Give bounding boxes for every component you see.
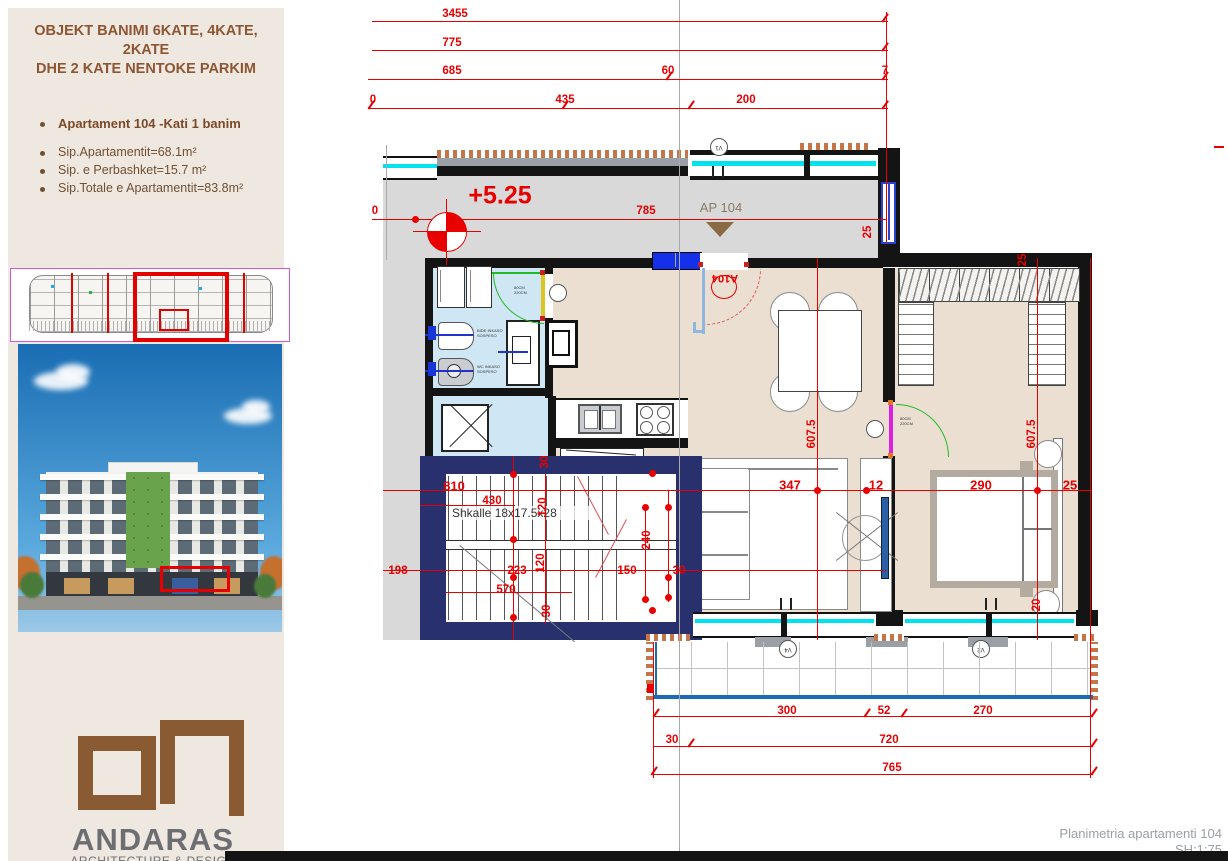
nightstand xyxy=(1034,440,1062,468)
dimension-label: 290 xyxy=(970,478,992,493)
dimension-label: 775 xyxy=(442,37,461,49)
apartment-info: Apartament 104 -Kati 1 banim Sip.Apartam… xyxy=(32,116,278,199)
dimension-label: 30 xyxy=(673,565,686,577)
dimension-label: 30 xyxy=(539,456,551,469)
window-mullion-mark xyxy=(712,166,724,178)
total-area: Sip.Totale e Apartamentit=83.8m² xyxy=(32,181,278,195)
apartment-entry-arrow xyxy=(706,222,734,237)
tree xyxy=(254,574,276,598)
key-plan-highlight-apartment-104 xyxy=(133,272,229,342)
logo-mark-n-left xyxy=(160,720,175,804)
sheet-bottom-bar xyxy=(225,851,1228,861)
dimension-label: 198 xyxy=(388,565,407,577)
key-plan-gridline xyxy=(243,273,245,333)
dimension-label: 785 xyxy=(636,205,655,217)
bedroom-door-size: 80CM220CM xyxy=(900,416,913,426)
dimension-label: 7 xyxy=(882,65,888,77)
bidet xyxy=(438,322,474,350)
dining-table xyxy=(778,310,862,392)
logo-mark-square xyxy=(78,736,156,810)
dimension-label: 0 xyxy=(372,205,378,217)
bedroom-door-leaf xyxy=(889,404,893,454)
balcony-edge xyxy=(653,695,1093,699)
sidebar-panel: OBJEKT BANIMI 6KATE, 4KATE, 2KATE DHE 2 … xyxy=(8,8,284,861)
dimension-label: 200 xyxy=(736,94,755,106)
balcony-tiles xyxy=(655,642,1091,696)
green-wall xyxy=(126,472,170,568)
dimension-label: 120 xyxy=(535,553,547,572)
dimension-label: 240 xyxy=(641,530,653,549)
dimension-label: 25 xyxy=(1017,254,1029,267)
key-plan-detail xyxy=(51,285,54,288)
grid-line-left xyxy=(386,145,387,260)
balcony-hatch-right xyxy=(1090,642,1098,700)
bath-door-size: 80CM220CM xyxy=(514,285,527,295)
grid-line-vertical xyxy=(679,0,680,852)
tree xyxy=(20,572,44,598)
entry-door-opening xyxy=(700,253,748,270)
tap xyxy=(428,326,436,340)
window-top-left xyxy=(383,156,437,180)
level-marker-symbol xyxy=(427,212,467,252)
dimension-label: 435 xyxy=(555,94,574,106)
dimension-label: 570 xyxy=(496,584,515,596)
cloud xyxy=(56,364,90,380)
apartment-heading: Apartament 104 -Kati 1 banim xyxy=(32,116,278,131)
drawing-sheet: OBJEKT BANIMI 6KATE, 4KATE, 2KATE DHE 2 … xyxy=(0,0,1228,861)
dimension-label: 52 xyxy=(878,705,891,717)
bed-post xyxy=(1020,461,1033,473)
dimension-label: 30 xyxy=(666,734,679,746)
dimension-label: 300 xyxy=(777,705,796,717)
level-label: +5.25 xyxy=(468,182,531,211)
toilet-label: WC INKASOSOSPESO xyxy=(477,364,500,374)
logo-mark-n-right xyxy=(229,720,244,816)
key-plan-gridline xyxy=(71,273,73,333)
entry-door-tag: A104 xyxy=(704,272,746,284)
wardrobe-shelves-left xyxy=(898,302,934,386)
dimension-label: 607.5 xyxy=(1026,420,1038,449)
dimension-label: 25 xyxy=(862,226,874,239)
street xyxy=(18,596,282,610)
electrical-panel xyxy=(652,252,702,270)
dimension-label: 20 xyxy=(1031,599,1043,612)
dimension-label: 0 xyxy=(370,94,376,106)
dimension-label: 60 xyxy=(662,65,675,77)
cloud xyxy=(242,400,270,414)
project-title-line2: DHE 2 KATE NENTOKE PARKIM xyxy=(36,61,256,77)
dimension-label: 25 xyxy=(1063,478,1077,493)
bidet-label: BIDE INKASOSOSPESO xyxy=(477,328,503,338)
apartment-tag: AP 104 xyxy=(693,200,749,215)
dimension-label: 430 xyxy=(482,495,501,507)
dimension-label: 347 xyxy=(779,478,801,493)
key-plan-highlight-inner xyxy=(159,309,189,331)
bath-door-tag xyxy=(549,284,567,302)
boiler-unit xyxy=(437,266,465,308)
tv-screen xyxy=(881,497,889,579)
drawing-title: Planimetria apartamenti 104 xyxy=(982,826,1222,841)
shared-area: Sip. e Perbashket=15.7 m² xyxy=(32,163,278,177)
stairs-label: Shkalle 18x17.5x28 xyxy=(452,506,592,520)
dimension-label: 3455 xyxy=(442,8,468,20)
dimension-label: 223 xyxy=(507,565,526,577)
bath-door-leaf xyxy=(541,274,545,320)
dimension-label: 120 xyxy=(537,497,549,516)
dimension-label: 12 xyxy=(869,478,883,493)
dimension-label: 685 xyxy=(442,65,461,77)
key-plan-gridline xyxy=(107,273,109,333)
wardrobe-hanging xyxy=(898,268,1080,302)
project-title: OBJEKT BANIMI 6KATE, 4KATE, 2KATE DHE 2 … xyxy=(14,22,278,79)
dimension-label: 720 xyxy=(879,734,898,746)
wardrobe-shelves-right xyxy=(1028,302,1066,386)
photo-highlight-apartment-104 xyxy=(160,566,230,592)
dimension-label: 765 xyxy=(882,762,901,774)
project-title-line1: OBJEKT BANIMI 6KATE, 4KATE, 2KATE xyxy=(34,23,257,58)
window-mullion-mark xyxy=(780,598,792,610)
dimension-label: 270 xyxy=(973,705,992,717)
dimension-label: 607.5 xyxy=(806,420,818,449)
bed-post xyxy=(1020,585,1033,597)
window-mullion-mark xyxy=(985,598,997,610)
dimension-label: 810 xyxy=(443,479,465,494)
edge-red-mark xyxy=(1214,146,1224,148)
tap xyxy=(428,362,436,376)
key-plan-detail xyxy=(89,291,92,294)
window-tag-v1: V1 xyxy=(710,138,728,156)
building-render-photo xyxy=(18,344,282,632)
bedroom-door-tag xyxy=(866,420,884,438)
sofa-cushion-column xyxy=(700,468,750,600)
shower-tray xyxy=(441,404,489,452)
dimension-label: 30 xyxy=(541,605,553,618)
dimension-label: 150 xyxy=(617,565,636,577)
key-plan-thumbnail xyxy=(10,268,290,342)
apartment-area: Sip.Apartamentit=68.1m² xyxy=(32,145,278,159)
